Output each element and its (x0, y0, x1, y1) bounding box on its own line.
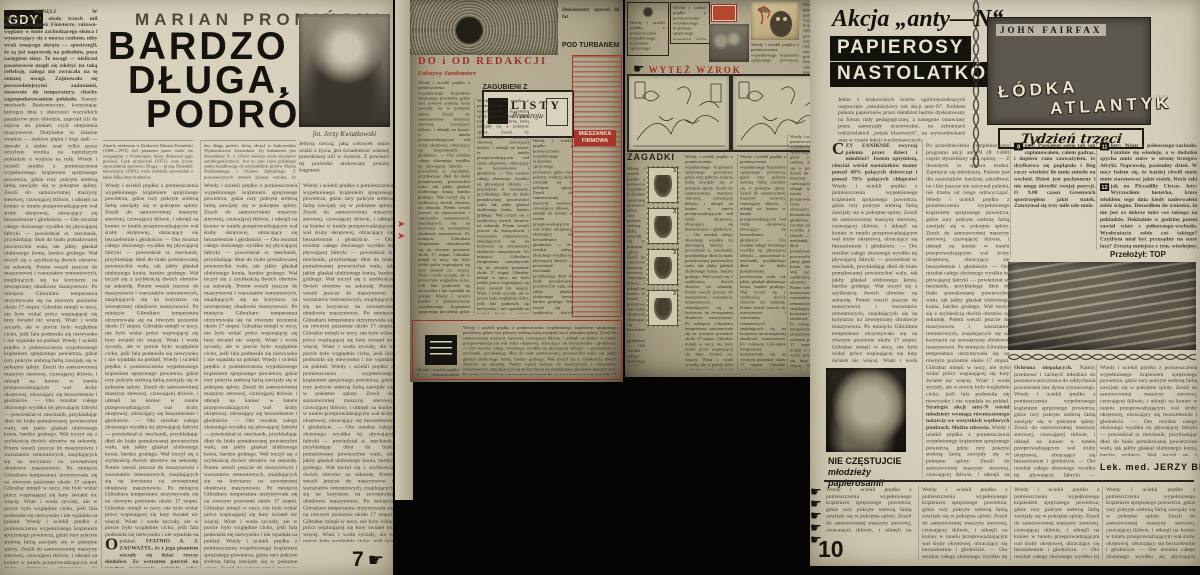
title-bar-2: NASTOLATKÓW (830, 62, 1014, 87)
body-text: Wtedy i uciekli prędko z pomieszczenia w… (1100, 364, 1197, 456)
right-col-4-diary: 11 luty: Wiatr z północnego-zachodu. Fat… (1096, 142, 1198, 250)
left-col-1: GDY MINĘLI W ODLEGŁOŚCI około trzech mil… (4, 8, 98, 568)
right-col-1: C ZY ZANIKNIE zwyczaj palenia przez dzie… (832, 142, 918, 364)
lead-czy: ZY ZANIKNIE zwyczaj palenia przez dzieci… (832, 142, 917, 182)
left-col-3: Wtedy i uciekli prędko z pomieszczenia w… (200, 182, 298, 568)
text-column: Wtedy i uciekli prędko z pomieszczenia w… (737, 154, 786, 370)
body-text: Wtedy i uciekli prędko z pomieszczenia w… (926, 196, 1009, 404)
stamp-value: 3 (673, 168, 676, 174)
story-col-3: Wtedy i uciekli prędko z pomieszczenia w… (1010, 486, 1100, 560)
dog-stamps-column: 3 3 3 3 (647, 166, 679, 326)
intro-column-left: Zmarły niedawno w Krakowie Marian Promiń… (103, 140, 193, 181)
body-text: Wtedy i uciekli prędko z pomieszczenia w… (832, 182, 917, 364)
photo-caption: fot. Jerzy Kwiatkowski (299, 130, 390, 138)
dog-stamp: 3 (647, 289, 679, 327)
col2-lead: Po przedstawieniu kompleksowego programu… (926, 142, 1009, 195)
red-column-panel (572, 55, 622, 317)
article-byline: Lek. med. JERZY BIRCZYŃSKI (1100, 462, 1200, 472)
intro-text: Jedno z krakowskich liceów ogólnokształc… (838, 96, 965, 143)
section-rule (824, 480, 1194, 482)
diary-entry-12: luty: Wyrzuciłem lusterko, które stłukłe… (1100, 182, 1197, 250)
black-notice-box (425, 335, 457, 365)
dropcap-o: O (105, 538, 119, 552)
book-cover-lodka-atlantyk: JOHN FAIRFAX ŁÓDKA ATLANTYK (988, 18, 1150, 124)
body-text: Wtedy i uciekli prędko z pomieszczenia w… (630, 20, 665, 52)
text-column: Wtedy i uciekli prędko z pomieszczenia w… (463, 325, 617, 375)
text-column: Wtedy i uciekli prędko z pomieszczenia w… (418, 80, 470, 314)
author-quote: Jedyną rzeczą, jaką człowiek może ocalić… (299, 140, 390, 178)
book-author: JOHN FAIRFAX (996, 24, 1106, 36)
pointing-hand-icon: ☛ (368, 550, 384, 570)
stamp-value: 3 (673, 209, 676, 215)
body-text: Wtedy i uciekli prędko z pomieszczenia w… (417, 367, 459, 376)
dog-image (654, 216, 672, 238)
dog-image (654, 298, 672, 320)
dog-image (654, 257, 672, 279)
right-page: Akcja „anty—N“ PAPIEROSY NASTOLATKÓW Jed… (810, 0, 1200, 566)
right-col-2: Po przedstawieniu kompleksowego programu… (922, 142, 1010, 478)
spacer (562, 6, 620, 40)
story-col-4: Wtedy i uciekli prędko z pomieszczenia w… (1102, 486, 1196, 560)
title-bar-1: PAPIEROSY (830, 36, 971, 61)
label-mieszanka-firmowa: MIESZANKA FIRMOWA (574, 130, 616, 146)
red-arrow-icon: ➤ (397, 232, 405, 242)
head-falszywy: Fałszywy Sandomierz (418, 70, 476, 77)
body-text: Wtedy i uciekli prędko z pomieszczenia w… (477, 98, 529, 314)
group-photo (709, 24, 749, 62)
title-nastolatkow: NASTOLATKÓW (830, 62, 1014, 87)
moire-graphic (410, 0, 558, 55)
body-text: Wtedy i uciekli prędko z pomieszczenia w… (533, 138, 573, 314)
stamp-value: 3 (673, 291, 676, 297)
no-smoking-line-1: NIE CZĘSTUJCIE (828, 456, 902, 467)
framed-notice-box: Wtedy i uciekli prędko z pomieszczenia w… (670, 2, 710, 44)
intro-text-right: dzo długą podróż, którą złożył w krakows… (204, 143, 296, 181)
middle-right-page: Wtedy i uciekli prędko z pomieszczenia w… (625, 0, 836, 377)
page-number-10: 10 (818, 536, 844, 563)
body-text: Wtedy i uciekli prędko z pomieszczenia w… (627, 166, 645, 366)
right-col-3-lower: Ochrona niepalących. Należy przekonać i … (1010, 364, 1096, 478)
diary-day-8: 8 (1014, 143, 1023, 151)
head-pod-turbanem: POD TURBANEM (562, 42, 619, 49)
left-page: GDY MINĘLI W ODLEGŁOŚCI około trzech mil… (0, 0, 393, 575)
illustration-sketch (751, 2, 799, 40)
dog-image (654, 175, 672, 197)
body-text: Wtedy i uciekli prędko z pomieszczenia w… (740, 154, 786, 370)
text-column: Wtedy i uciekli prędko z pomieszczenia w… (630, 20, 665, 52)
diary-entry-8: luty: Pospałem sobie tak jak zaplanowałe… (1014, 142, 1096, 209)
story-col-2: Wtedy i uciekli prędko z pomieszczenia w… (918, 486, 1008, 560)
text-column: Wtedy i uciekli prędko z pomieszczenia w… (474, 98, 529, 314)
text-column: Wtedy i uciekli prędko z pomieszczenia w… (417, 367, 459, 376)
lead-start: MINĘLI W ODLEGŁOŚCI około trzech mil ska… (4, 8, 97, 102)
right-col-4-lower: Wtedy i uciekli prędko z pomieszczenia w… (1096, 364, 1198, 456)
no-smoking-appeal: NIE CZĘSTUJCIE młodzieży papierosami! (828, 456, 902, 489)
left-col-2: Wtedy i uciekli prędko z pomieszczenia w… (101, 182, 199, 568)
body-text: Wtedy i uciekli prędko z pomieszczenia w… (204, 182, 297, 568)
diary-day-12: 12 (1100, 183, 1109, 191)
translator-credit: Przełożył: TOP (1110, 250, 1166, 259)
section-heading-redakcja: DO i OD REDAKCJI (418, 56, 547, 67)
red-mini-box (711, 4, 737, 22)
text-column: MINĘLI W ODLEGŁOŚCI około trzech mil ska… (4, 8, 98, 568)
body-text: Wtedy i uciekli prędko z pomieszczenia w… (926, 424, 1009, 478)
stamp-value: 3 (673, 250, 676, 256)
dog-stamp: 3 (647, 166, 679, 204)
intro-text-left: Zmarły niedawno w Krakowie Marian Promiń… (103, 143, 193, 179)
puzzle-line-art (629, 76, 729, 150)
subhead-health: Służba zdrowia. (952, 424, 990, 430)
text-column: Wtedy i uciekli prędko z pomieszczenia w… (685, 154, 733, 370)
puzzle-picture-left (627, 74, 731, 152)
crest-emblem (641, 6, 655, 18)
dog-stamp: 3 (647, 248, 679, 286)
intro-column-right: dzo długą podróż, którą złożył w krakows… (200, 140, 296, 181)
title-papierosy: PAPIEROSY (830, 36, 971, 61)
body-text: Wtedy i uciekli prędko z pomieszczenia w… (826, 486, 911, 532)
middle-left-page: Dokumenty sprzed 40 lat POD TURBANEM DO … (410, 0, 623, 382)
body-text: Wtedy i uciekli prędko z pomieszczenia w… (4, 156, 97, 568)
body-text: Wtedy i uciekli prędko z pomieszczenia w… (685, 154, 733, 370)
author-portrait-photo (299, 14, 390, 127)
body-text: Wtedy i uciekli prędko z pomieszczenia w… (303, 182, 393, 542)
red-arrow-icon: ➤ (397, 220, 405, 230)
ocean-waves-photo (1008, 262, 1196, 350)
quotes-column: Wtedy i uciekli prędko z pomieszczenia w… (751, 42, 799, 64)
story-col-1: Wtedy i uciekli prędko z pomieszczenia w… (826, 486, 912, 532)
text-column: Wtedy i uciekli prędko z pomieszczenia w… (530, 138, 573, 314)
quote-text: Jedyną rzeczą, jaką człowiek może ocalić… (299, 140, 389, 174)
left-page-footer: 7 ☛ (352, 548, 384, 572)
text-column: Wtedy i uciekli prędko z pomieszczenia w… (627, 166, 645, 366)
no-smoking-line-2: młodzieży (828, 467, 902, 478)
body-paragraph: Starszy mechanik Bezkonieczny, korzystaj… (4, 95, 97, 162)
diary-day-11: 11 (1100, 143, 1109, 151)
body-text: Wtedy i uciekli prędko z pomieszczenia w… (922, 486, 1007, 560)
colour-illustration (751, 2, 799, 40)
body-text: Wtedy i uciekli prędko z pomieszczenia w… (1106, 486, 1195, 560)
magazine-scan: GDY MINĘLI W ODLEGŁOŚCI około trzech mil… (0, 0, 1200, 575)
body-text: Wtedy i uciekli prędko z pomieszczenia w… (673, 5, 706, 40)
letters-answers-strip: Wtedy i uciekli prędko z pomieszczenia w… (412, 320, 622, 380)
chain-divider-horizontal (1008, 352, 1196, 362)
subhead-protect: Ochrona niepalących. (1014, 364, 1072, 370)
body-text: Wtedy i uciekli prędko z pomieszczenia w… (1014, 391, 1096, 478)
dog-stamp: 3 (647, 207, 679, 245)
body-text: Wtedy i uciekli prędko z pomieszczenia w… (463, 325, 617, 375)
fist-with-cigarettes-photo (826, 368, 906, 452)
body-text: Wtedy i uciekli prędko z pomieszczenia w… (105, 182, 198, 544)
text-column: Wtedy i uciekli prędko z pomieszczenia w… (673, 5, 706, 40)
body-text: Wtedy i uciekli prędko z pomieszczenia w… (1014, 486, 1099, 560)
dropcap-c: C (832, 142, 846, 156)
left-col-4: Wtedy i uciekli prędko z pomieszczenia w… (299, 182, 394, 542)
head-zagadki: ZAGADKI (627, 152, 675, 162)
framed-notice-box: Wtedy i uciekli prędko z pomieszczenia w… (627, 2, 669, 56)
right-col-3-diary: 8 luty: Pospałem sobie tak jak zaplanowa… (1010, 142, 1096, 258)
page-number-7: 7 (352, 548, 364, 571)
body-text: Wtedy i uciekli prędko z pomieszczenia w… (418, 80, 470, 314)
body-text: Wtedy i uciekli prędko z pomieszczenia w… (751, 42, 799, 64)
diary-entry-11: luty: Wiatr z północnego-zachodu. Fataln… (1100, 142, 1197, 189)
